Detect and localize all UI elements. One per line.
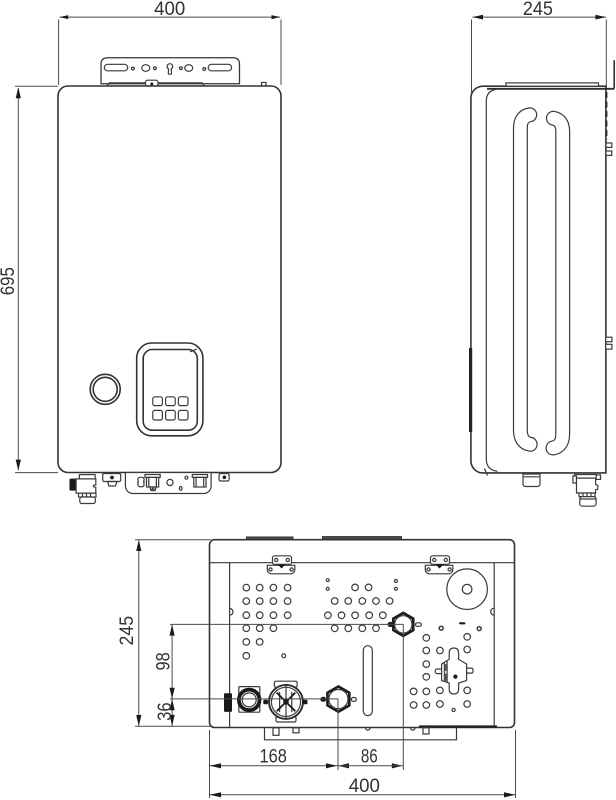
svg-text:168: 168 — [260, 746, 287, 767]
svg-text:36: 36 — [155, 702, 176, 721]
svg-text:400: 400 — [349, 776, 380, 797]
svg-text:245: 245 — [523, 0, 553, 20]
svg-text:245: 245 — [117, 616, 138, 646]
svg-text:695: 695 — [0, 267, 19, 295]
svg-text:400: 400 — [154, 0, 185, 20]
svg-text:86: 86 — [361, 746, 378, 767]
svg-text:98: 98 — [153, 652, 174, 670]
